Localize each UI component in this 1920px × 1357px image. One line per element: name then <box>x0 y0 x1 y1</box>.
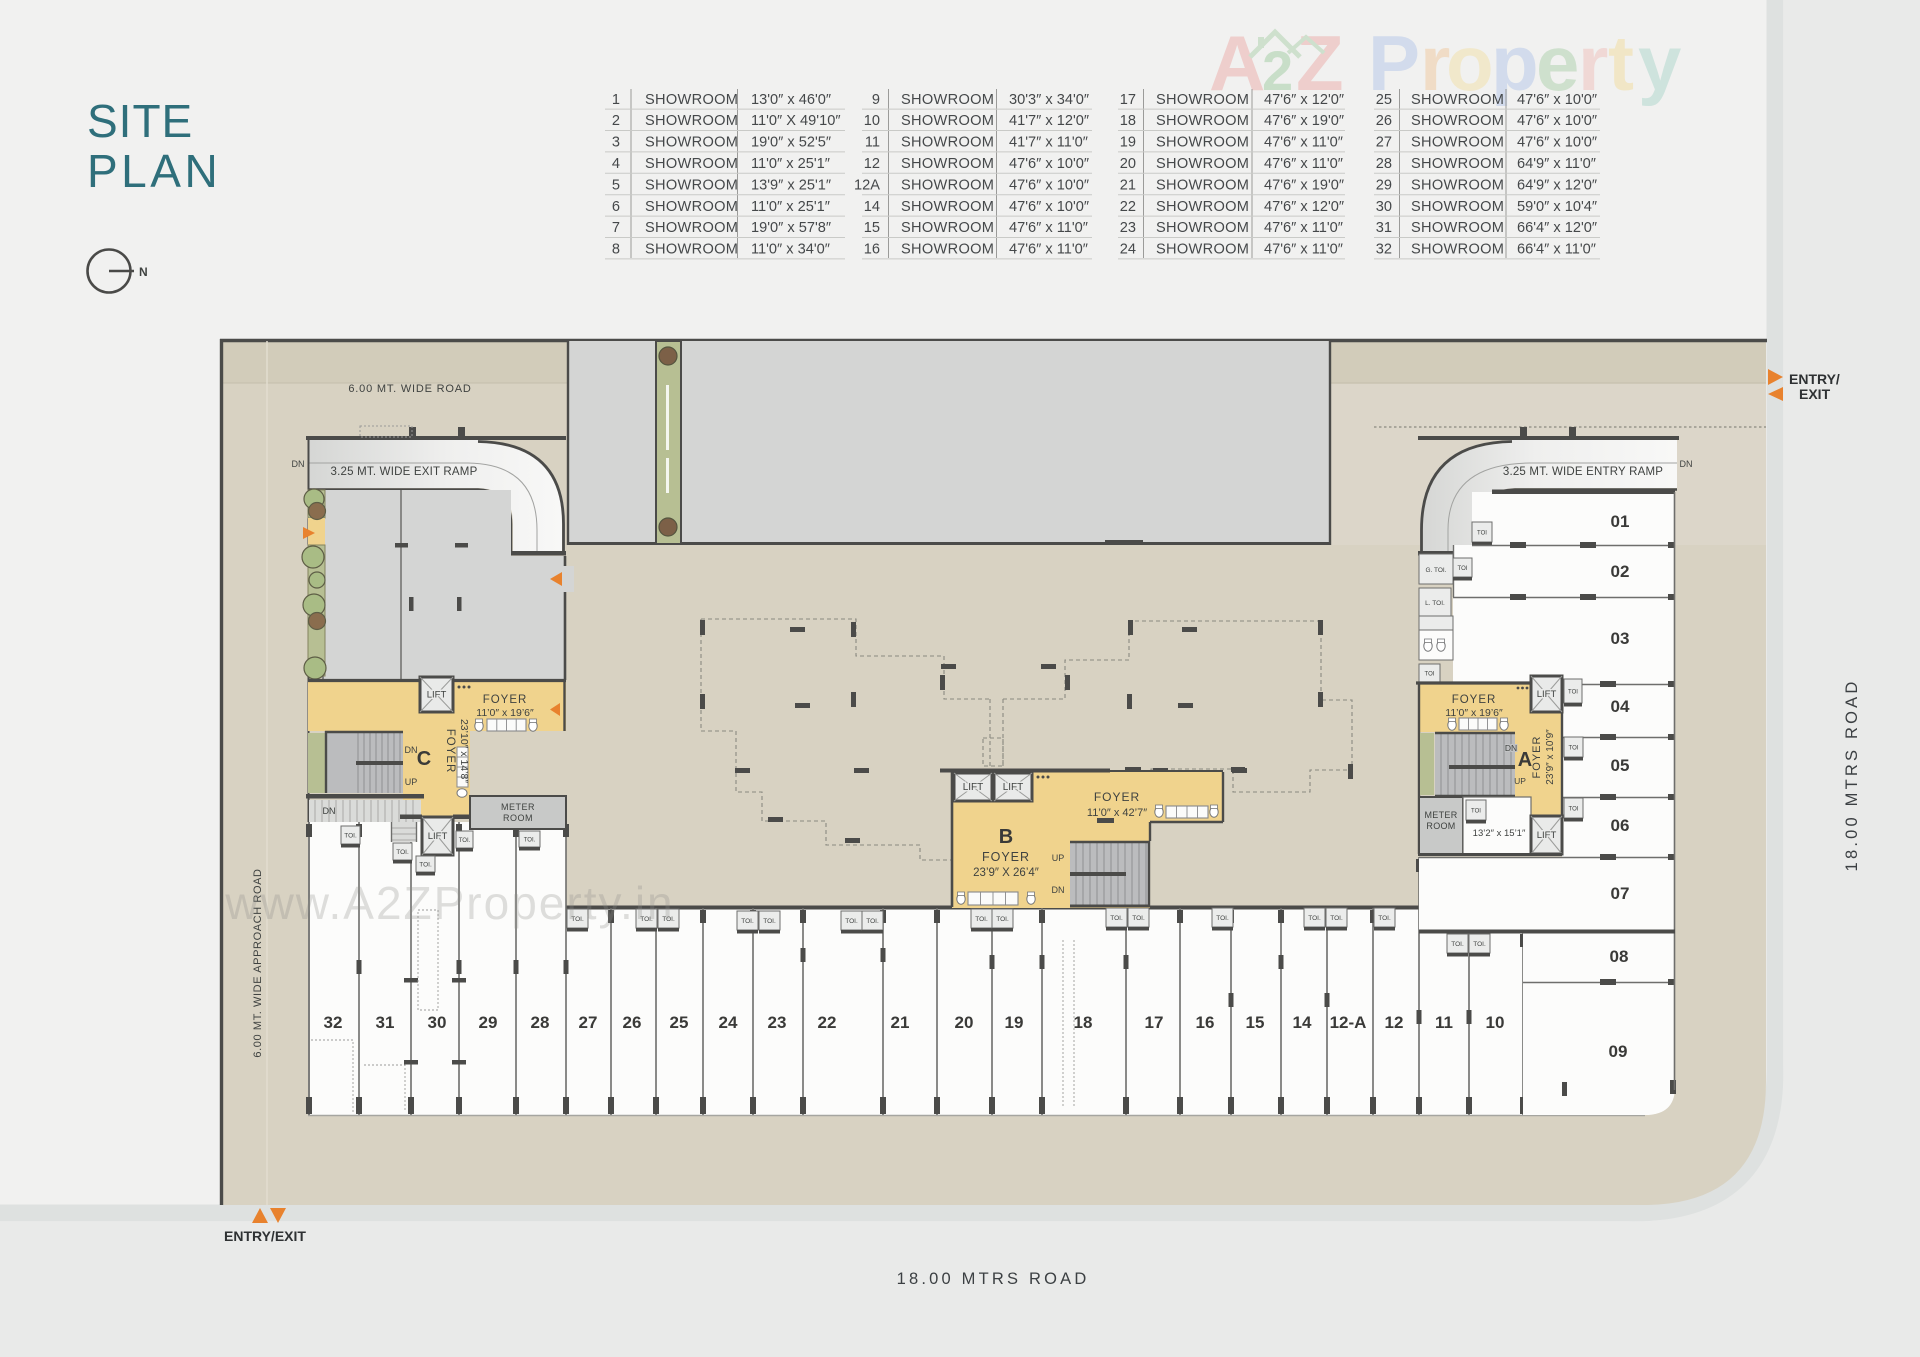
svg-text:TOI.: TOI. <box>1132 915 1145 922</box>
svg-text:29: 29 <box>479 1013 498 1032</box>
svg-text:9: 9 <box>872 92 880 108</box>
svg-text:DN: DN <box>323 806 336 816</box>
svg-text:SHOWROOM: SHOWROOM <box>1156 242 1249 258</box>
svg-text:SHOWROOM: SHOWROOM <box>645 220 738 236</box>
svg-text:24: 24 <box>719 1013 738 1032</box>
svg-text:SHOWROOM: SHOWROOM <box>645 135 738 151</box>
svg-text:11'0″ X 49'10″: 11'0″ X 49'10″ <box>751 113 840 129</box>
svg-text:FOYER: FOYER <box>483 694 528 706</box>
svg-text:SHOWROOM: SHOWROOM <box>901 92 994 108</box>
svg-text:EXIT: EXIT <box>1799 386 1831 402</box>
svg-text:SHOWROOM: SHOWROOM <box>901 220 994 236</box>
svg-text:TOI: TOI <box>1458 566 1468 572</box>
svg-text:19: 19 <box>1005 1013 1024 1032</box>
svg-text:N: N <box>139 265 148 279</box>
svg-text:15: 15 <box>1246 1013 1265 1032</box>
svg-text:13'9″ x 25'1″: 13'9″ x 25'1″ <box>751 177 831 193</box>
svg-text:59'0″ x 10'4″: 59'0″ x 10'4″ <box>1517 199 1597 215</box>
svg-text:23’9″ X 26’4″: 23’9″ X 26’4″ <box>973 867 1039 879</box>
svg-text:LIFT: LIFT <box>428 831 448 842</box>
svg-text:DN: DN <box>292 459 305 469</box>
svg-text:19: 19 <box>1120 135 1136 151</box>
svg-text:LIFT: LIFT <box>1537 689 1557 700</box>
svg-text:19'0″ x 52'5″: 19'0″ x 52'5″ <box>751 135 831 151</box>
svg-text:47'6″ x 11'0″: 47'6″ x 11'0″ <box>1009 220 1088 236</box>
svg-text:22: 22 <box>1120 199 1136 215</box>
svg-text:FOYER: FOYER <box>1452 694 1497 706</box>
svg-text:66'4″ x 12'0″: 66'4″ x 12'0″ <box>1517 220 1597 236</box>
svg-text:TOI.: TOI. <box>975 916 988 923</box>
svg-text:03: 03 <box>1611 629 1630 648</box>
svg-text:SHOWROOM: SHOWROOM <box>1156 220 1249 236</box>
svg-text:3.25 MT. WIDE EXIT RAMP: 3.25 MT. WIDE EXIT RAMP <box>331 466 478 478</box>
svg-text:30: 30 <box>428 1013 447 1032</box>
svg-text:6.00 MT. WIDE ROAD: 6.00 MT. WIDE ROAD <box>348 383 471 395</box>
svg-text:ENTRY/EXIT: ENTRY/EXIT <box>224 1228 306 1244</box>
svg-text:DN: DN <box>1052 885 1065 895</box>
svg-text:www.A2ZProperty.in: www.A2ZProperty.in <box>224 877 674 929</box>
svg-text:47'6″ x 10'0″: 47'6″ x 10'0″ <box>1517 92 1597 108</box>
svg-text:TOI.: TOI. <box>1110 915 1123 922</box>
svg-text:SHOWROOM: SHOWROOM <box>1411 242 1504 258</box>
svg-text:24: 24 <box>1120 242 1136 258</box>
svg-text:FOYER: FOYER <box>1094 790 1140 804</box>
svg-text:G. TOI.: G. TOI. <box>1425 567 1446 574</box>
svg-text:04: 04 <box>1611 697 1630 716</box>
svg-text:3.25 MT. WIDE ENTRY RAMP: 3.25 MT. WIDE ENTRY RAMP <box>1503 466 1663 478</box>
svg-text:11'0″ x 34'0″: 11'0″ x 34'0″ <box>751 242 830 258</box>
svg-text:29: 29 <box>1376 177 1392 193</box>
svg-text:L. TOI.: L. TOI. <box>1425 600 1445 607</box>
svg-text:TOI.: TOI. <box>419 862 432 869</box>
svg-text:14: 14 <box>864 199 880 215</box>
svg-text:47'6″ x 11'0″: 47'6″ x 11'0″ <box>1264 220 1343 236</box>
svg-text:64'9″ x 11'0″: 64'9″ x 11'0″ <box>1517 156 1596 172</box>
svg-text:11’0″ x 42’7″: 11’0″ x 42’7″ <box>1087 807 1147 819</box>
svg-text:PLAN: PLAN <box>87 145 221 197</box>
svg-text:TOI.: TOI. <box>763 918 776 925</box>
svg-text:DN: DN <box>1680 459 1693 469</box>
svg-text:47'6″ x 12'0″: 47'6″ x 12'0″ <box>1264 92 1344 108</box>
svg-text:SHOWROOM: SHOWROOM <box>901 156 994 172</box>
svg-text:18: 18 <box>1074 1013 1093 1032</box>
svg-text:12A: 12A <box>854 177 880 193</box>
svg-text:23: 23 <box>768 1013 787 1032</box>
svg-text:TOI.: TOI. <box>1308 915 1321 922</box>
svg-text:SHOWROOM: SHOWROOM <box>645 177 738 193</box>
svg-text:3: 3 <box>612 135 620 151</box>
svg-text:SHOWROOM: SHOWROOM <box>645 156 738 172</box>
svg-text:47'6″ x 19'0″: 47'6″ x 19'0″ <box>1264 177 1344 193</box>
svg-text:SHOWROOM: SHOWROOM <box>1156 113 1249 129</box>
svg-text:47'6″ x 11'0″: 47'6″ x 11'0″ <box>1009 242 1088 258</box>
svg-text:18.00 MTRS ROAD: 18.00 MTRS ROAD <box>1843 679 1861 872</box>
svg-text:DN: DN <box>1505 743 1517 753</box>
svg-text:SHOWROOM: SHOWROOM <box>901 199 994 215</box>
svg-text:SHOWROOM: SHOWROOM <box>1156 92 1249 108</box>
svg-text:17: 17 <box>1145 1013 1164 1032</box>
svg-text:ROOM: ROOM <box>503 813 533 823</box>
svg-text:20: 20 <box>955 1013 974 1032</box>
svg-text:UP: UP <box>405 777 418 787</box>
svg-text:11: 11 <box>865 135 880 151</box>
svg-text:47'6″ x 10'0″: 47'6″ x 10'0″ <box>1517 113 1597 129</box>
svg-text:05: 05 <box>1611 756 1630 775</box>
svg-text:47'6″ x 10'0″: 47'6″ x 10'0″ <box>1009 177 1089 193</box>
svg-text:7: 7 <box>612 220 620 236</box>
svg-text:4: 4 <box>612 156 620 172</box>
svg-text:1: 1 <box>612 92 620 108</box>
svg-text:SHOWROOM: SHOWROOM <box>1156 156 1249 172</box>
svg-text:C: C <box>417 748 431 770</box>
svg-text:SHOWROOM: SHOWROOM <box>1411 92 1504 108</box>
svg-text:TOI.: TOI. <box>1473 941 1486 948</box>
svg-text:31: 31 <box>376 1013 395 1032</box>
svg-text:22: 22 <box>818 1013 837 1032</box>
svg-text:28: 28 <box>531 1013 550 1032</box>
svg-text:TOI: TOI <box>1569 746 1579 752</box>
svg-text:2: 2 <box>612 113 620 129</box>
svg-text:SHOWROOM: SHOWROOM <box>1411 113 1504 129</box>
svg-text:LIFT: LIFT <box>1537 830 1557 841</box>
svg-text:t: t <box>1608 19 1634 107</box>
svg-text:11: 11 <box>1435 1013 1453 1032</box>
svg-text:SHOWROOM: SHOWROOM <box>901 242 994 258</box>
svg-text:FOYER: FOYER <box>1531 736 1543 779</box>
svg-text:12-A: 12-A <box>1330 1013 1367 1032</box>
svg-text:TOI.: TOI. <box>396 849 409 856</box>
svg-text:27: 27 <box>1376 135 1392 151</box>
svg-text:66'4″ x 11'0″: 66'4″ x 11'0″ <box>1517 242 1596 258</box>
svg-text:SHOWROOM: SHOWROOM <box>1156 199 1249 215</box>
svg-text:TOI.: TOI. <box>845 918 858 925</box>
svg-text:TOI.: TOI. <box>866 918 879 925</box>
svg-text:47'6″ x 10'0″: 47'6″ x 10'0″ <box>1009 199 1089 215</box>
svg-text:23’10″ x 14’8″: 23’10″ x 14’8″ <box>458 719 470 783</box>
svg-text:17: 17 <box>1120 92 1136 108</box>
svg-text:TOI.: TOI. <box>1378 915 1391 922</box>
svg-text:12: 12 <box>864 156 880 172</box>
svg-text:41'7″ x 12'0″: 41'7″ x 12'0″ <box>1009 113 1089 129</box>
svg-text:13’2″ x 15’1″: 13’2″ x 15’1″ <box>1473 828 1526 839</box>
svg-text:31: 31 <box>1376 220 1392 236</box>
svg-text:08: 08 <box>1610 947 1629 966</box>
svg-text:SHOWROOM: SHOWROOM <box>1411 177 1504 193</box>
svg-text:41'7″ x 11'0″: 41'7″ x 11'0″ <box>1009 135 1088 151</box>
svg-text:y: y <box>1638 19 1681 107</box>
svg-text:06: 06 <box>1611 816 1630 835</box>
svg-text:18.00 MTRS ROAD: 18.00 MTRS ROAD <box>897 1270 1090 1288</box>
svg-text:SHOWROOM: SHOWROOM <box>901 177 994 193</box>
svg-text:30'3″ x 34'0″: 30'3″ x 34'0″ <box>1009 92 1089 108</box>
svg-text:47'6″ x 19'0″: 47'6″ x 19'0″ <box>1264 113 1344 129</box>
svg-text:SHOWROOM: SHOWROOM <box>1411 156 1504 172</box>
svg-text:LIFT: LIFT <box>1003 782 1024 793</box>
svg-text:25: 25 <box>1376 92 1392 108</box>
svg-text:B: B <box>999 826 1013 848</box>
svg-text:11’0″ x 19’6″: 11’0″ x 19’6″ <box>1445 707 1503 719</box>
svg-text:SHOWROOM: SHOWROOM <box>1411 220 1504 236</box>
svg-text:TOI: TOI <box>1568 690 1578 696</box>
svg-text:30: 30 <box>1376 199 1392 215</box>
svg-text:47'6″ x 11'0″: 47'6″ x 11'0″ <box>1264 135 1343 151</box>
svg-text:01: 01 <box>1611 512 1630 531</box>
svg-text:TOI: TOI <box>1477 531 1487 537</box>
svg-text:26: 26 <box>623 1013 642 1032</box>
svg-text:21: 21 <box>891 1013 910 1032</box>
svg-text:SHOWROOM: SHOWROOM <box>901 113 994 129</box>
svg-text:20: 20 <box>1120 156 1136 172</box>
svg-text:ENTRY/: ENTRY/ <box>1789 371 1840 387</box>
svg-text:23’9″ x 10’9″: 23’9″ x 10’9″ <box>1545 729 1556 785</box>
svg-text:TOI.: TOI. <box>459 838 471 844</box>
svg-text:26: 26 <box>1376 113 1392 129</box>
svg-text:12: 12 <box>1385 1013 1404 1032</box>
svg-text:SHOWROOM: SHOWROOM <box>901 135 994 151</box>
svg-text:10: 10 <box>1486 1013 1505 1032</box>
svg-text:TOI.: TOI. <box>1330 915 1343 922</box>
svg-text:UP: UP <box>1514 776 1526 786</box>
svg-text:5: 5 <box>612 177 620 193</box>
svg-text:64'9″ x 12'0″: 64'9″ x 12'0″ <box>1517 177 1597 193</box>
svg-text:FOYER: FOYER <box>982 850 1030 864</box>
svg-text:47'6″ x 10'0″: 47'6″ x 10'0″ <box>1517 135 1597 151</box>
svg-text:27: 27 <box>579 1013 598 1032</box>
svg-text:SHOWROOM: SHOWROOM <box>1156 135 1249 151</box>
svg-text:18: 18 <box>1120 113 1136 129</box>
svg-text:LIFT: LIFT <box>427 690 447 701</box>
svg-text:13'0″ x 46'0″: 13'0″ x 46'0″ <box>751 92 831 108</box>
svg-text:14: 14 <box>1293 1013 1312 1032</box>
svg-text:DN: DN <box>405 745 418 755</box>
svg-text:47'6″ x 11'0″: 47'6″ x 11'0″ <box>1264 242 1343 258</box>
svg-text:25: 25 <box>670 1013 689 1032</box>
svg-text:15: 15 <box>864 220 880 236</box>
svg-text:47'6″ x 10'0″: 47'6″ x 10'0″ <box>1009 156 1089 172</box>
svg-text:LIFT: LIFT <box>963 782 984 793</box>
svg-text:10: 10 <box>864 113 880 129</box>
svg-text:21: 21 <box>1120 177 1136 193</box>
svg-text:TOI: TOI <box>1425 672 1435 678</box>
svg-text:11'0″ x 25'1″: 11'0″ x 25'1″ <box>751 156 830 172</box>
svg-text:32: 32 <box>324 1013 343 1032</box>
svg-text:TOI.: TOI. <box>741 918 754 925</box>
svg-text:SITE: SITE <box>87 95 193 147</box>
svg-text:FOYER: FOYER <box>444 729 456 774</box>
svg-text:SHOWROOM: SHOWROOM <box>1156 177 1249 193</box>
svg-text:UP: UP <box>1052 853 1065 863</box>
svg-text:11’0″ x 19’6″: 11’0″ x 19’6″ <box>476 707 534 719</box>
svg-text:TOI.: TOI. <box>524 838 536 844</box>
svg-text:SHOWROOM: SHOWROOM <box>645 199 738 215</box>
svg-text:09: 09 <box>1609 1042 1628 1061</box>
svg-text:6: 6 <box>612 199 620 215</box>
svg-text:SHOWROOM: SHOWROOM <box>645 92 738 108</box>
svg-text:23: 23 <box>1120 220 1136 236</box>
svg-text:47'6″ x 11'0″: 47'6″ x 11'0″ <box>1264 156 1343 172</box>
svg-text:47'6″ x 12'0″: 47'6″ x 12'0″ <box>1264 199 1344 215</box>
svg-text:19'0″ x 57'8″: 19'0″ x 57'8″ <box>751 220 831 236</box>
svg-text:11'0″ x 25'1″: 11'0″ x 25'1″ <box>751 199 830 215</box>
svg-text:28: 28 <box>1376 156 1392 172</box>
svg-text:TOI: TOI <box>1569 807 1579 813</box>
svg-text:TOI.: TOI. <box>1451 941 1464 948</box>
svg-text:ROOM: ROOM <box>1426 821 1455 831</box>
svg-text:02: 02 <box>1611 562 1630 581</box>
svg-text:METER: METER <box>501 802 535 812</box>
svg-text:TOI: TOI <box>1471 809 1481 815</box>
svg-text:SHOWROOM: SHOWROOM <box>1411 199 1504 215</box>
svg-text:TOI.: TOI. <box>996 916 1009 923</box>
svg-text:SHOWROOM: SHOWROOM <box>645 113 738 129</box>
svg-text:TOI.: TOI. <box>1216 915 1229 922</box>
svg-text:16: 16 <box>1196 1013 1215 1032</box>
svg-text:07: 07 <box>1611 884 1630 903</box>
svg-text:SHOWROOM: SHOWROOM <box>645 242 738 258</box>
svg-text:8: 8 <box>612 242 620 258</box>
svg-text:TOI.: TOI. <box>344 833 357 840</box>
svg-text:SHOWROOM: SHOWROOM <box>1411 135 1504 151</box>
svg-text:16: 16 <box>864 242 880 258</box>
svg-text:METER: METER <box>1425 810 1458 820</box>
svg-text:32: 32 <box>1376 242 1392 258</box>
